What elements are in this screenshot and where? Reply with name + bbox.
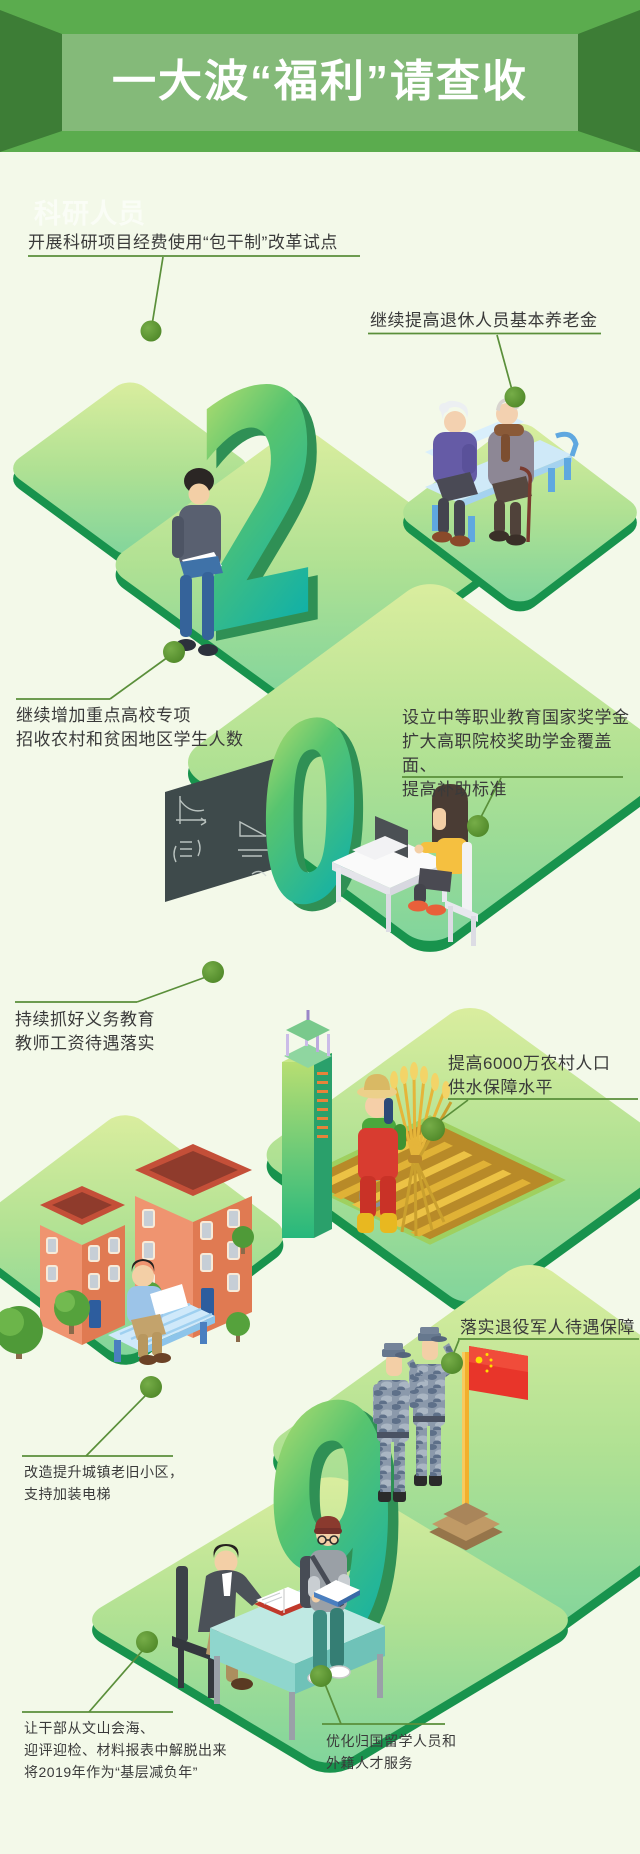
callout-rural-water-supply: 提高6000万农村人口 供水保障水平 bbox=[448, 1052, 610, 1100]
callout-dot bbox=[141, 321, 162, 342]
grandfather bbox=[488, 398, 534, 546]
callout-teacher-salary: 持续抓好义务教育 教师工资待遇落实 bbox=[15, 1008, 155, 1056]
callout-vocational-scholarship: 设立中等职业教育国家奖学金 扩大高职院校奖助学金覆盖面、 提高补助标准 bbox=[402, 706, 640, 802]
svg-text:0: 0 bbox=[259, 661, 361, 968]
teal-pants bbox=[313, 1610, 327, 1672]
callout-old-residential-renewal: 改造提升城镇老旧小区， 支持加装电梯 bbox=[24, 1461, 184, 1505]
white-chair bbox=[462, 842, 472, 916]
callout-dot bbox=[163, 641, 185, 663]
red-shoe bbox=[408, 901, 428, 912]
callout-veterans-benefits: 落实退役军人待遇保障 bbox=[460, 1316, 635, 1340]
callout-dot bbox=[441, 1352, 463, 1374]
callout-dot bbox=[202, 961, 224, 983]
watermark-label: 科研人员 bbox=[34, 192, 146, 231]
callout-connector bbox=[86, 1394, 147, 1456]
callout-connector bbox=[152, 257, 163, 325]
head-scarf bbox=[384, 1098, 393, 1124]
callout-dot bbox=[421, 1117, 445, 1141]
page-title: 一大波“福利”请查收 bbox=[0, 52, 640, 112]
callout-connector bbox=[110, 657, 168, 699]
callout-connector bbox=[137, 977, 206, 1002]
gazebo-top bbox=[284, 1010, 332, 1068]
callout-overseas-talent-service: 优化归国留学人员和 外籍人才服务 bbox=[326, 1730, 457, 1774]
callout-dot bbox=[505, 387, 526, 408]
door bbox=[89, 1300, 101, 1328]
scarf bbox=[494, 424, 524, 436]
chair bbox=[176, 1566, 188, 1642]
infographic-poster: 2 2 bbox=[0, 0, 640, 1854]
callout-dot bbox=[136, 1631, 158, 1653]
callout-connector bbox=[89, 1650, 143, 1712]
callout-pension-increase: 继续提高退休人员基本养老金 bbox=[370, 309, 598, 333]
callout-grassroots-burden-relief: 让干部从文山会海、 迎评迎检、材料报表中解脱出来 将2019年作为“基层减负年” bbox=[24, 1717, 227, 1783]
farmer-overalls bbox=[358, 1128, 398, 1180]
callout-dot bbox=[310, 1665, 332, 1687]
callout-connector bbox=[497, 335, 512, 390]
digit-1-tower bbox=[282, 1010, 332, 1238]
digit-0: 0 0 bbox=[259, 659, 370, 977]
poster-artwork: 2 2 bbox=[0, 0, 640, 1854]
callout-college-special-admission: 继续增加重点高校专项 招收农村和贫困地区学生人数 bbox=[16, 704, 244, 752]
rubber-boot bbox=[357, 1213, 374, 1233]
callout-dot bbox=[140, 1376, 162, 1398]
callout-research-funding: 开展科研项目经费使用“包干制”改革试点 bbox=[28, 231, 338, 255]
callout-dot bbox=[467, 815, 489, 837]
